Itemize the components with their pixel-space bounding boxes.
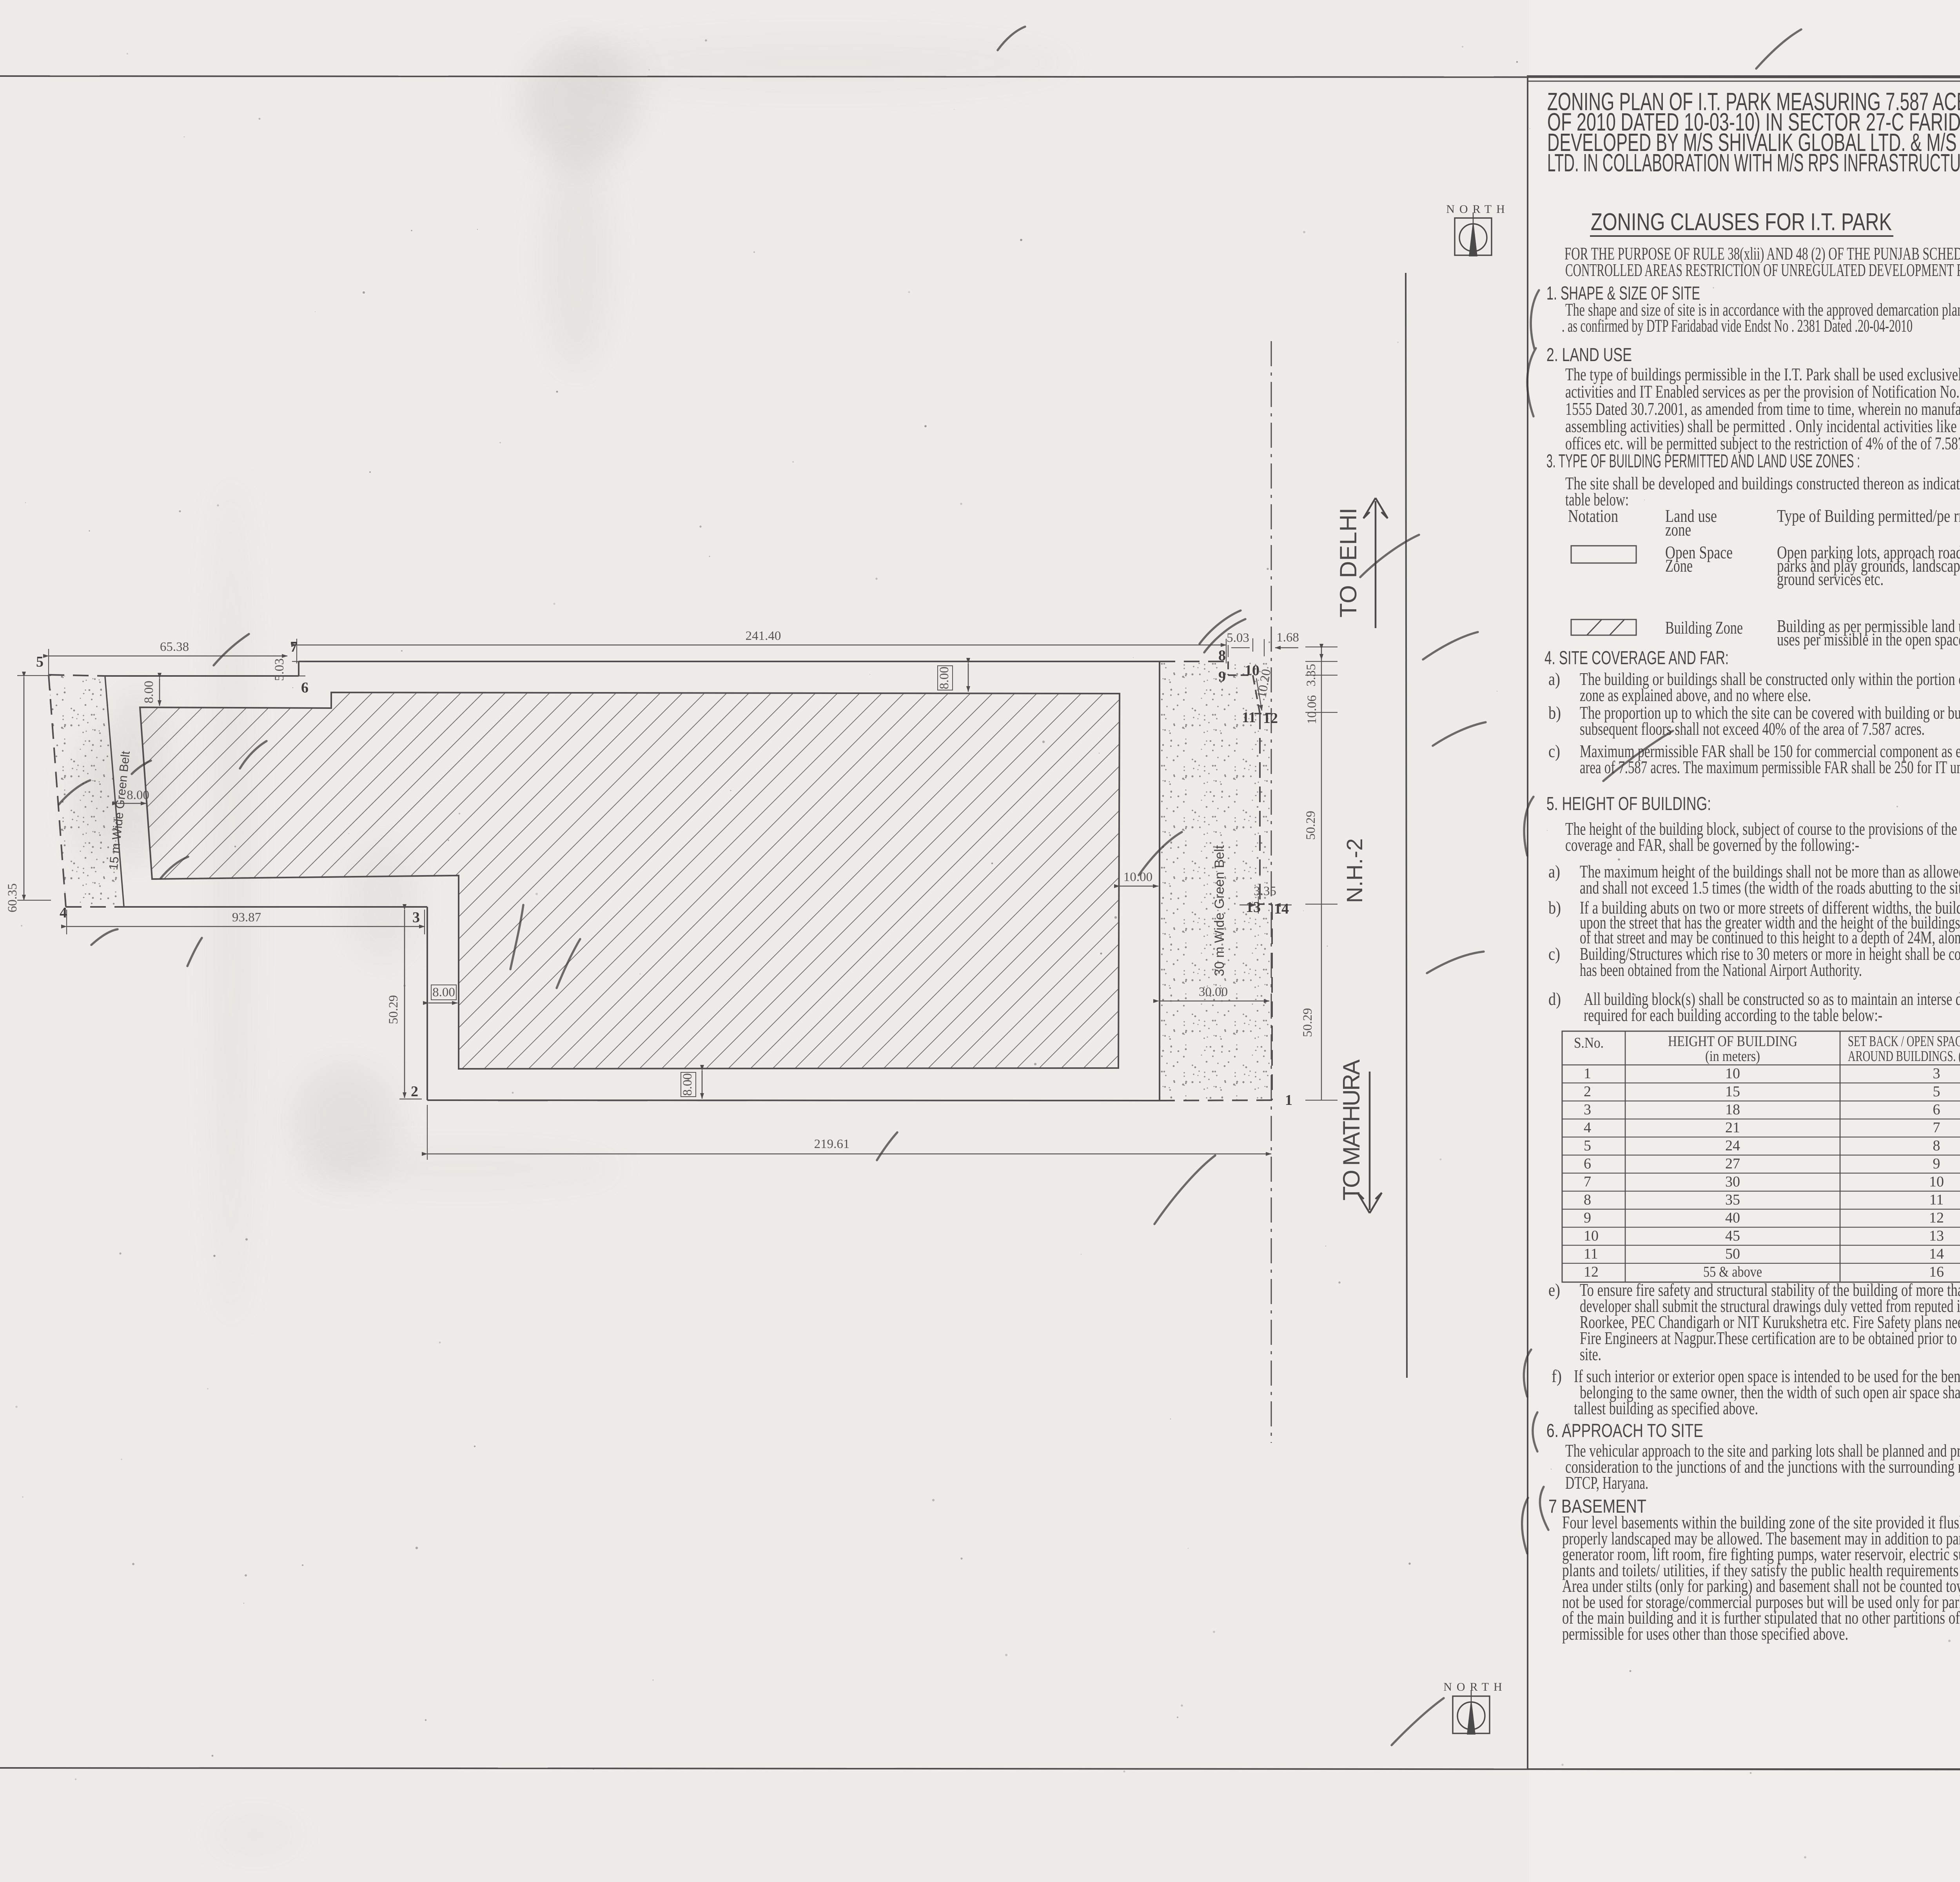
svg-text:Fire Engineers at Nagpur.These: Fire Engineers at Nagpur.These certifica…	[1580, 1328, 1960, 1348]
svg-text:11: 11	[1584, 1246, 1598, 1262]
svg-text:12: 12	[1929, 1210, 1944, 1226]
svg-text:10: 10	[1725, 1065, 1740, 1082]
svg-text:7: 7	[1933, 1119, 1940, 1136]
svg-text:30: 30	[1725, 1174, 1740, 1190]
svg-text:2. LAND USE: 2. LAND USE	[1546, 345, 1632, 365]
svg-text:e): e)	[1548, 1280, 1560, 1300]
svg-text:uses per missible in the open: uses per missible in the open space zone…	[1777, 629, 1960, 649]
svg-text:NORTH: NORTH	[1446, 203, 1510, 216]
svg-text:3: 3	[412, 909, 420, 926]
svg-text:ground services etc.: ground services etc.	[1777, 569, 1884, 589]
svg-text:50.29: 50.29	[1301, 1008, 1315, 1037]
svg-text:8: 8	[1933, 1137, 1940, 1154]
svg-text:8.00: 8.00	[127, 788, 149, 802]
svg-text:4. SITE COVERAGE AND FAR:: 4. SITE COVERAGE AND FAR:	[1544, 648, 1729, 669]
svg-text:and shall not exceed 1.5 time: and shall not exceed 1.5 times (the widt…	[1580, 877, 1960, 897]
svg-text:9: 9	[1218, 669, 1226, 685]
svg-text:8.00: 8.00	[142, 681, 156, 703]
svg-text:Building Zone: Building Zone	[1665, 618, 1743, 638]
svg-text:4: 4	[1584, 1119, 1591, 1136]
svg-text:b): b)	[1548, 703, 1561, 723]
svg-text:241.40: 241.40	[746, 629, 781, 643]
svg-text:18: 18	[1725, 1101, 1740, 1118]
svg-text:HEIGHT OF BUILDING: HEIGHT OF BUILDING	[1668, 1033, 1797, 1050]
svg-text:14: 14	[1274, 901, 1289, 917]
svg-text:13: 13	[1246, 899, 1261, 916]
svg-text:10.00: 10.00	[1123, 870, 1152, 884]
svg-text:27: 27	[1725, 1155, 1740, 1172]
svg-text:CONTROLLED AREAS RESTRICTION O: CONTROLLED AREAS RESTRICTION OF UNREGULA…	[1565, 260, 1960, 280]
svg-text:6: 6	[301, 679, 309, 696]
svg-text:5. HEIGHT OF BUILDING:: 5. HEIGHT OF BUILDING:	[1546, 794, 1711, 814]
svg-text:TO MATHURA: TO MATHURA	[1338, 1059, 1365, 1201]
svg-text:b): b)	[1548, 897, 1561, 917]
svg-text:Zone: Zone	[1665, 556, 1693, 576]
svg-text:DTCP, Haryana.: DTCP, Haryana.	[1565, 1473, 1648, 1493]
svg-text:3. TYPE OF BUILDING PERMITTED: 3. TYPE OF BUILDING PERMITTED AND LAND U…	[1546, 451, 1860, 472]
svg-text:30.00: 30.00	[1199, 985, 1228, 999]
svg-text:50.29: 50.29	[387, 995, 401, 1024]
svg-text:required for each building acc: required for each building according to …	[1584, 1005, 1882, 1025]
svg-text:60.35: 60.35	[5, 883, 20, 912]
svg-text:a): a)	[1548, 669, 1560, 689]
svg-text:1: 1	[1584, 1065, 1591, 1082]
svg-text:40: 40	[1725, 1210, 1740, 1226]
svg-text:13: 13	[1929, 1228, 1944, 1244]
svg-text:coverage and FAR, shall be go: coverage and FAR, shall be governed by t…	[1565, 835, 1859, 855]
svg-text:subsequent floors shall not ex: subsequent floors shall not exceed 40% o…	[1580, 719, 1925, 739]
svg-text:3.35: 3.35	[1254, 884, 1276, 898]
svg-text:3.35: 3.35	[1304, 664, 1318, 687]
svg-text:219.61: 219.61	[814, 1137, 850, 1151]
svg-text:c): c)	[1548, 741, 1560, 761]
svg-text:11: 11	[1242, 709, 1256, 726]
svg-text:d): d)	[1548, 989, 1561, 1009]
svg-text:7: 7	[1584, 1174, 1591, 1190]
svg-text:SET BACK / OPEN SPACE TO BE LE: SET BACK / OPEN SPACE TO BE LEFT	[1848, 1033, 1960, 1050]
svg-text:5: 5	[36, 654, 44, 670]
svg-text:zone: zone	[1665, 520, 1691, 540]
svg-text:8.00: 8.00	[681, 1073, 695, 1096]
svg-text:5.03: 5.03	[1227, 631, 1249, 645]
svg-text:ZONING CLAUSES FOR I.T. PARK: ZONING CLAUSES FOR I.T. PARK	[1591, 209, 1892, 236]
svg-text:8: 8	[1584, 1192, 1591, 1208]
svg-text:NORTH: NORTH	[1443, 1680, 1507, 1693]
svg-text:. as confirmed by DTP Faridaba: . as confirmed by DTP Faridabad vide End…	[1562, 316, 1913, 336]
svg-text:Type of Building permitted/pe: Type of Building permitted/pe rmissible …	[1777, 506, 1960, 526]
svg-text:10: 10	[1584, 1228, 1599, 1244]
svg-text:30 m Wide Green Belt: 30 m Wide Green Belt	[1212, 845, 1227, 976]
svg-text:site.: site.	[1580, 1344, 1601, 1364]
svg-text:9: 9	[1933, 1155, 1940, 1172]
svg-text:35: 35	[1725, 1192, 1740, 1208]
svg-text:a): a)	[1548, 861, 1560, 881]
svg-text:8: 8	[1218, 647, 1226, 664]
svg-text:10: 10	[1245, 662, 1259, 679]
svg-text:f): f)	[1552, 1366, 1562, 1386]
svg-text:LTD. IN COLLABORATION WITH M/S: LTD. IN COLLABORATION WITH M/S RPS INFRA…	[1547, 149, 1960, 177]
svg-text:9: 9	[1584, 1210, 1591, 1226]
svg-text:1.68: 1.68	[1276, 630, 1299, 645]
svg-text:5: 5	[1584, 1137, 1591, 1154]
svg-text:6: 6	[1933, 1101, 1940, 1118]
svg-text:6: 6	[1584, 1155, 1591, 1172]
svg-text:50.29: 50.29	[1304, 811, 1318, 840]
svg-text:2: 2	[411, 1083, 418, 1100]
svg-text:8.00: 8.00	[937, 667, 951, 689]
svg-text:area of 7.587 acres. The maxim: area of 7.587 acres. The maximum permiss…	[1580, 757, 1960, 777]
svg-text:55 & above: 55 & above	[1703, 1264, 1762, 1280]
svg-text:S.No.: S.No.	[1574, 1035, 1604, 1051]
svg-text:50: 50	[1725, 1246, 1740, 1262]
svg-text:1: 1	[1285, 1092, 1292, 1108]
svg-text:3: 3	[1933, 1065, 1940, 1082]
svg-text:16: 16	[1929, 1264, 1944, 1280]
svg-text:5.03: 5.03	[272, 658, 287, 681]
svg-text:45: 45	[1725, 1228, 1740, 1244]
svg-text:N.H.-2: N.H.-2	[1342, 838, 1367, 903]
svg-text:15: 15	[1725, 1083, 1740, 1100]
svg-text:zone as explained above, and n: zone as explained above, and no where el…	[1580, 685, 1811, 705]
svg-text:93.87: 93.87	[232, 910, 261, 925]
svg-text:4: 4	[60, 905, 67, 921]
svg-text:tallest building as specified: tallest building as specified above.	[1574, 1398, 1758, 1418]
svg-text:7: 7	[290, 639, 298, 655]
svg-text:6. APPROACH TO SITE: 6. APPROACH TO SITE	[1546, 1421, 1703, 1441]
svg-text:AROUND BUILDINGS. (in meters): AROUND BUILDINGS. (in meters)	[1848, 1048, 1960, 1065]
svg-text:3: 3	[1584, 1101, 1591, 1118]
svg-text:2: 2	[1584, 1083, 1591, 1100]
svg-text:24: 24	[1725, 1137, 1740, 1154]
svg-text:10: 10	[1929, 1174, 1944, 1190]
svg-text:10.06: 10.06	[1305, 695, 1319, 724]
svg-text:11: 11	[1929, 1192, 1944, 1208]
svg-text:21: 21	[1725, 1119, 1740, 1136]
svg-text:12: 12	[1584, 1264, 1599, 1280]
svg-text:permissible for uses other tha: permissible for uses other than those sp…	[1562, 1624, 1848, 1644]
svg-text:14: 14	[1929, 1246, 1944, 1262]
svg-text:c): c)	[1548, 944, 1560, 964]
svg-text:Notation: Notation	[1568, 506, 1618, 526]
svg-text:TO DELHI: TO DELHI	[1335, 508, 1361, 618]
svg-text:12: 12	[1263, 710, 1278, 727]
svg-text:5: 5	[1933, 1083, 1940, 1100]
svg-text:offices etc. will be permitted: offices etc. will be permitted subject t…	[1565, 433, 1960, 453]
svg-text:has been obtained from the Nat: has been obtained from the National Airp…	[1580, 960, 1862, 980]
svg-text:65.38: 65.38	[160, 640, 189, 654]
svg-text:8.00: 8.00	[432, 985, 455, 999]
svg-text:(in meters): (in meters)	[1705, 1048, 1760, 1065]
